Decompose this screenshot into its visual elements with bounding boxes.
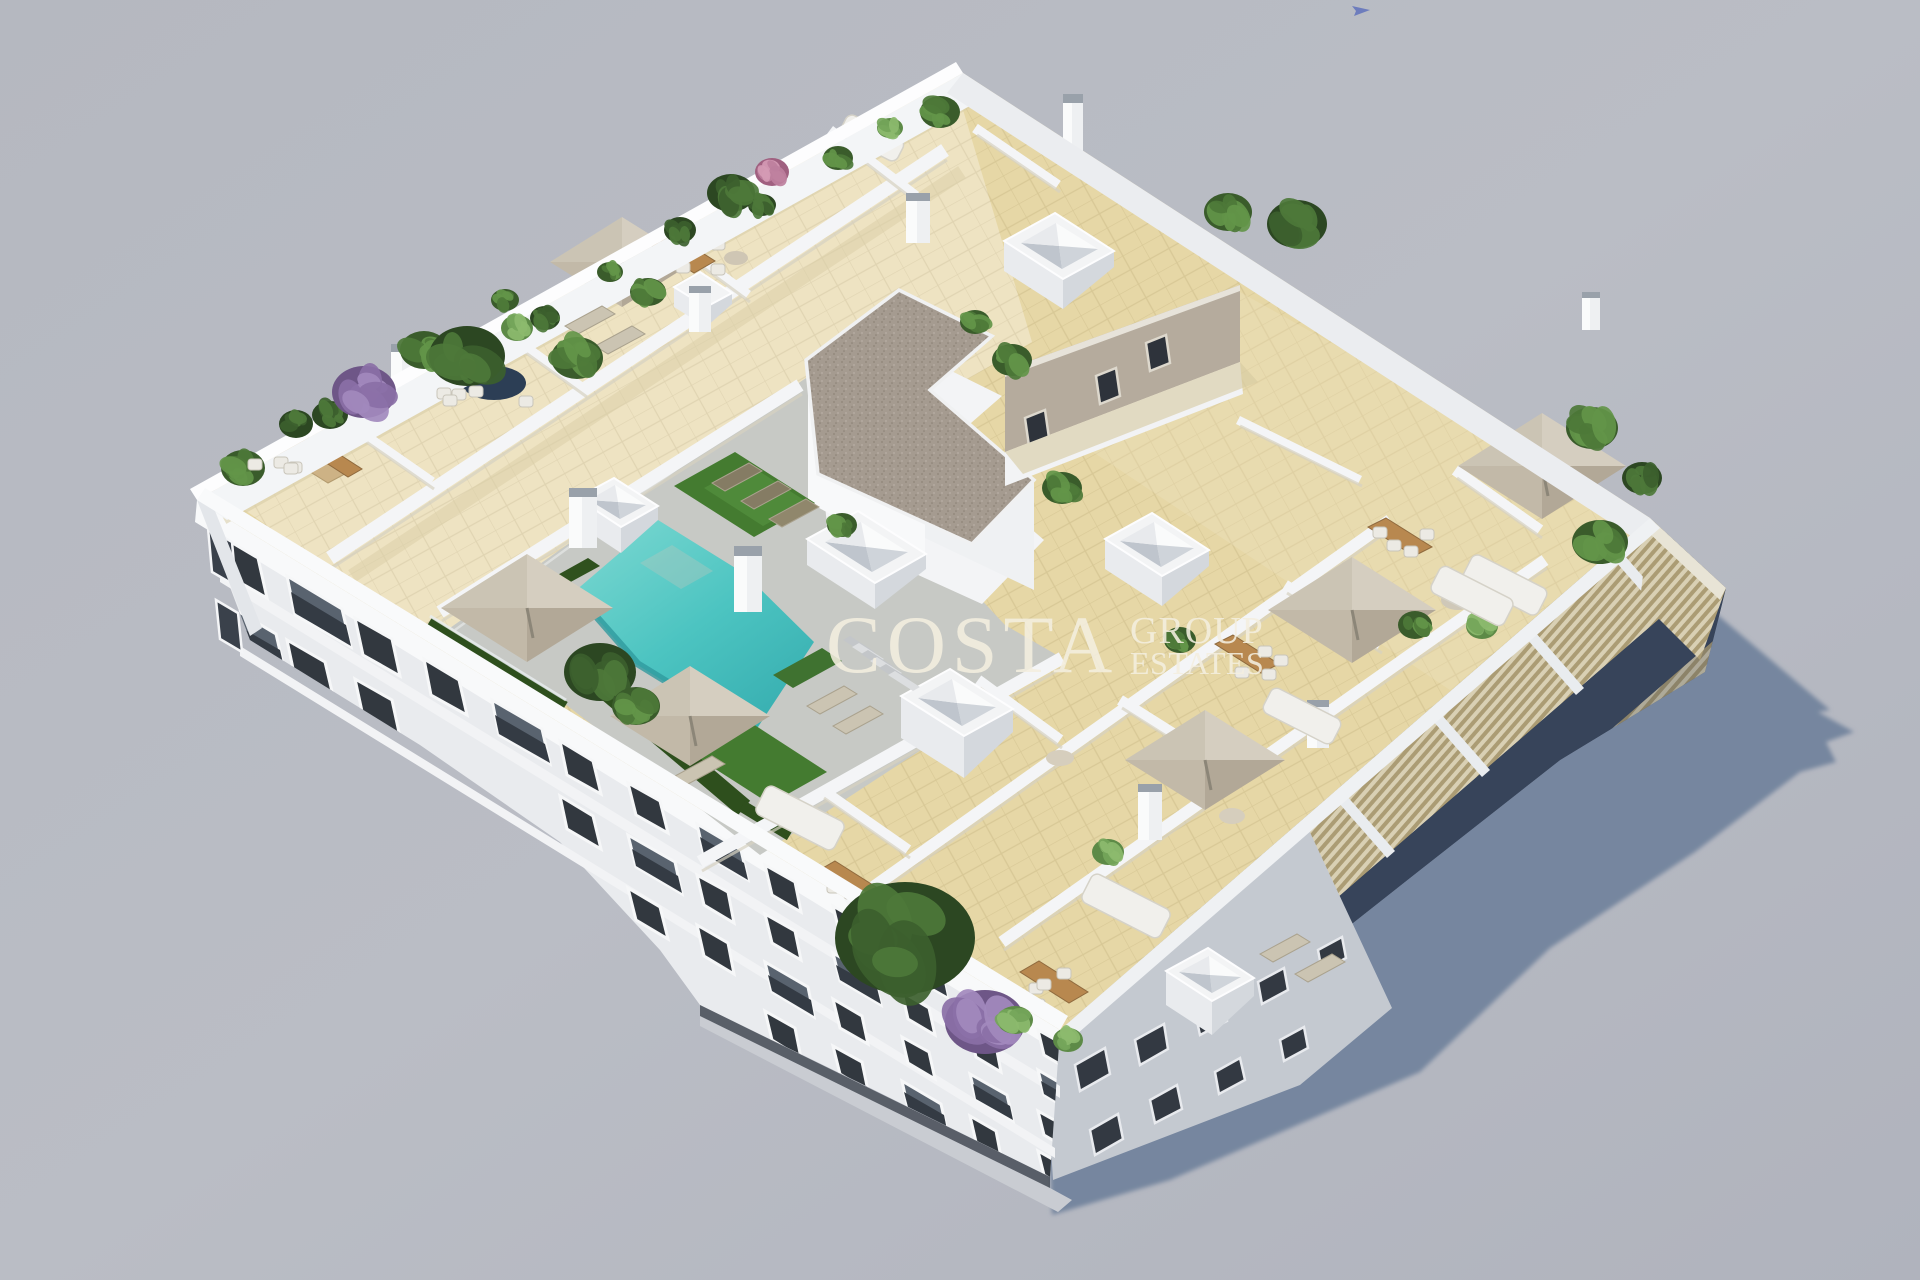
svg-text:COSTA: COSTA [826, 599, 1118, 690]
svg-text:ESTATES: ESTATES [1130, 645, 1264, 681]
